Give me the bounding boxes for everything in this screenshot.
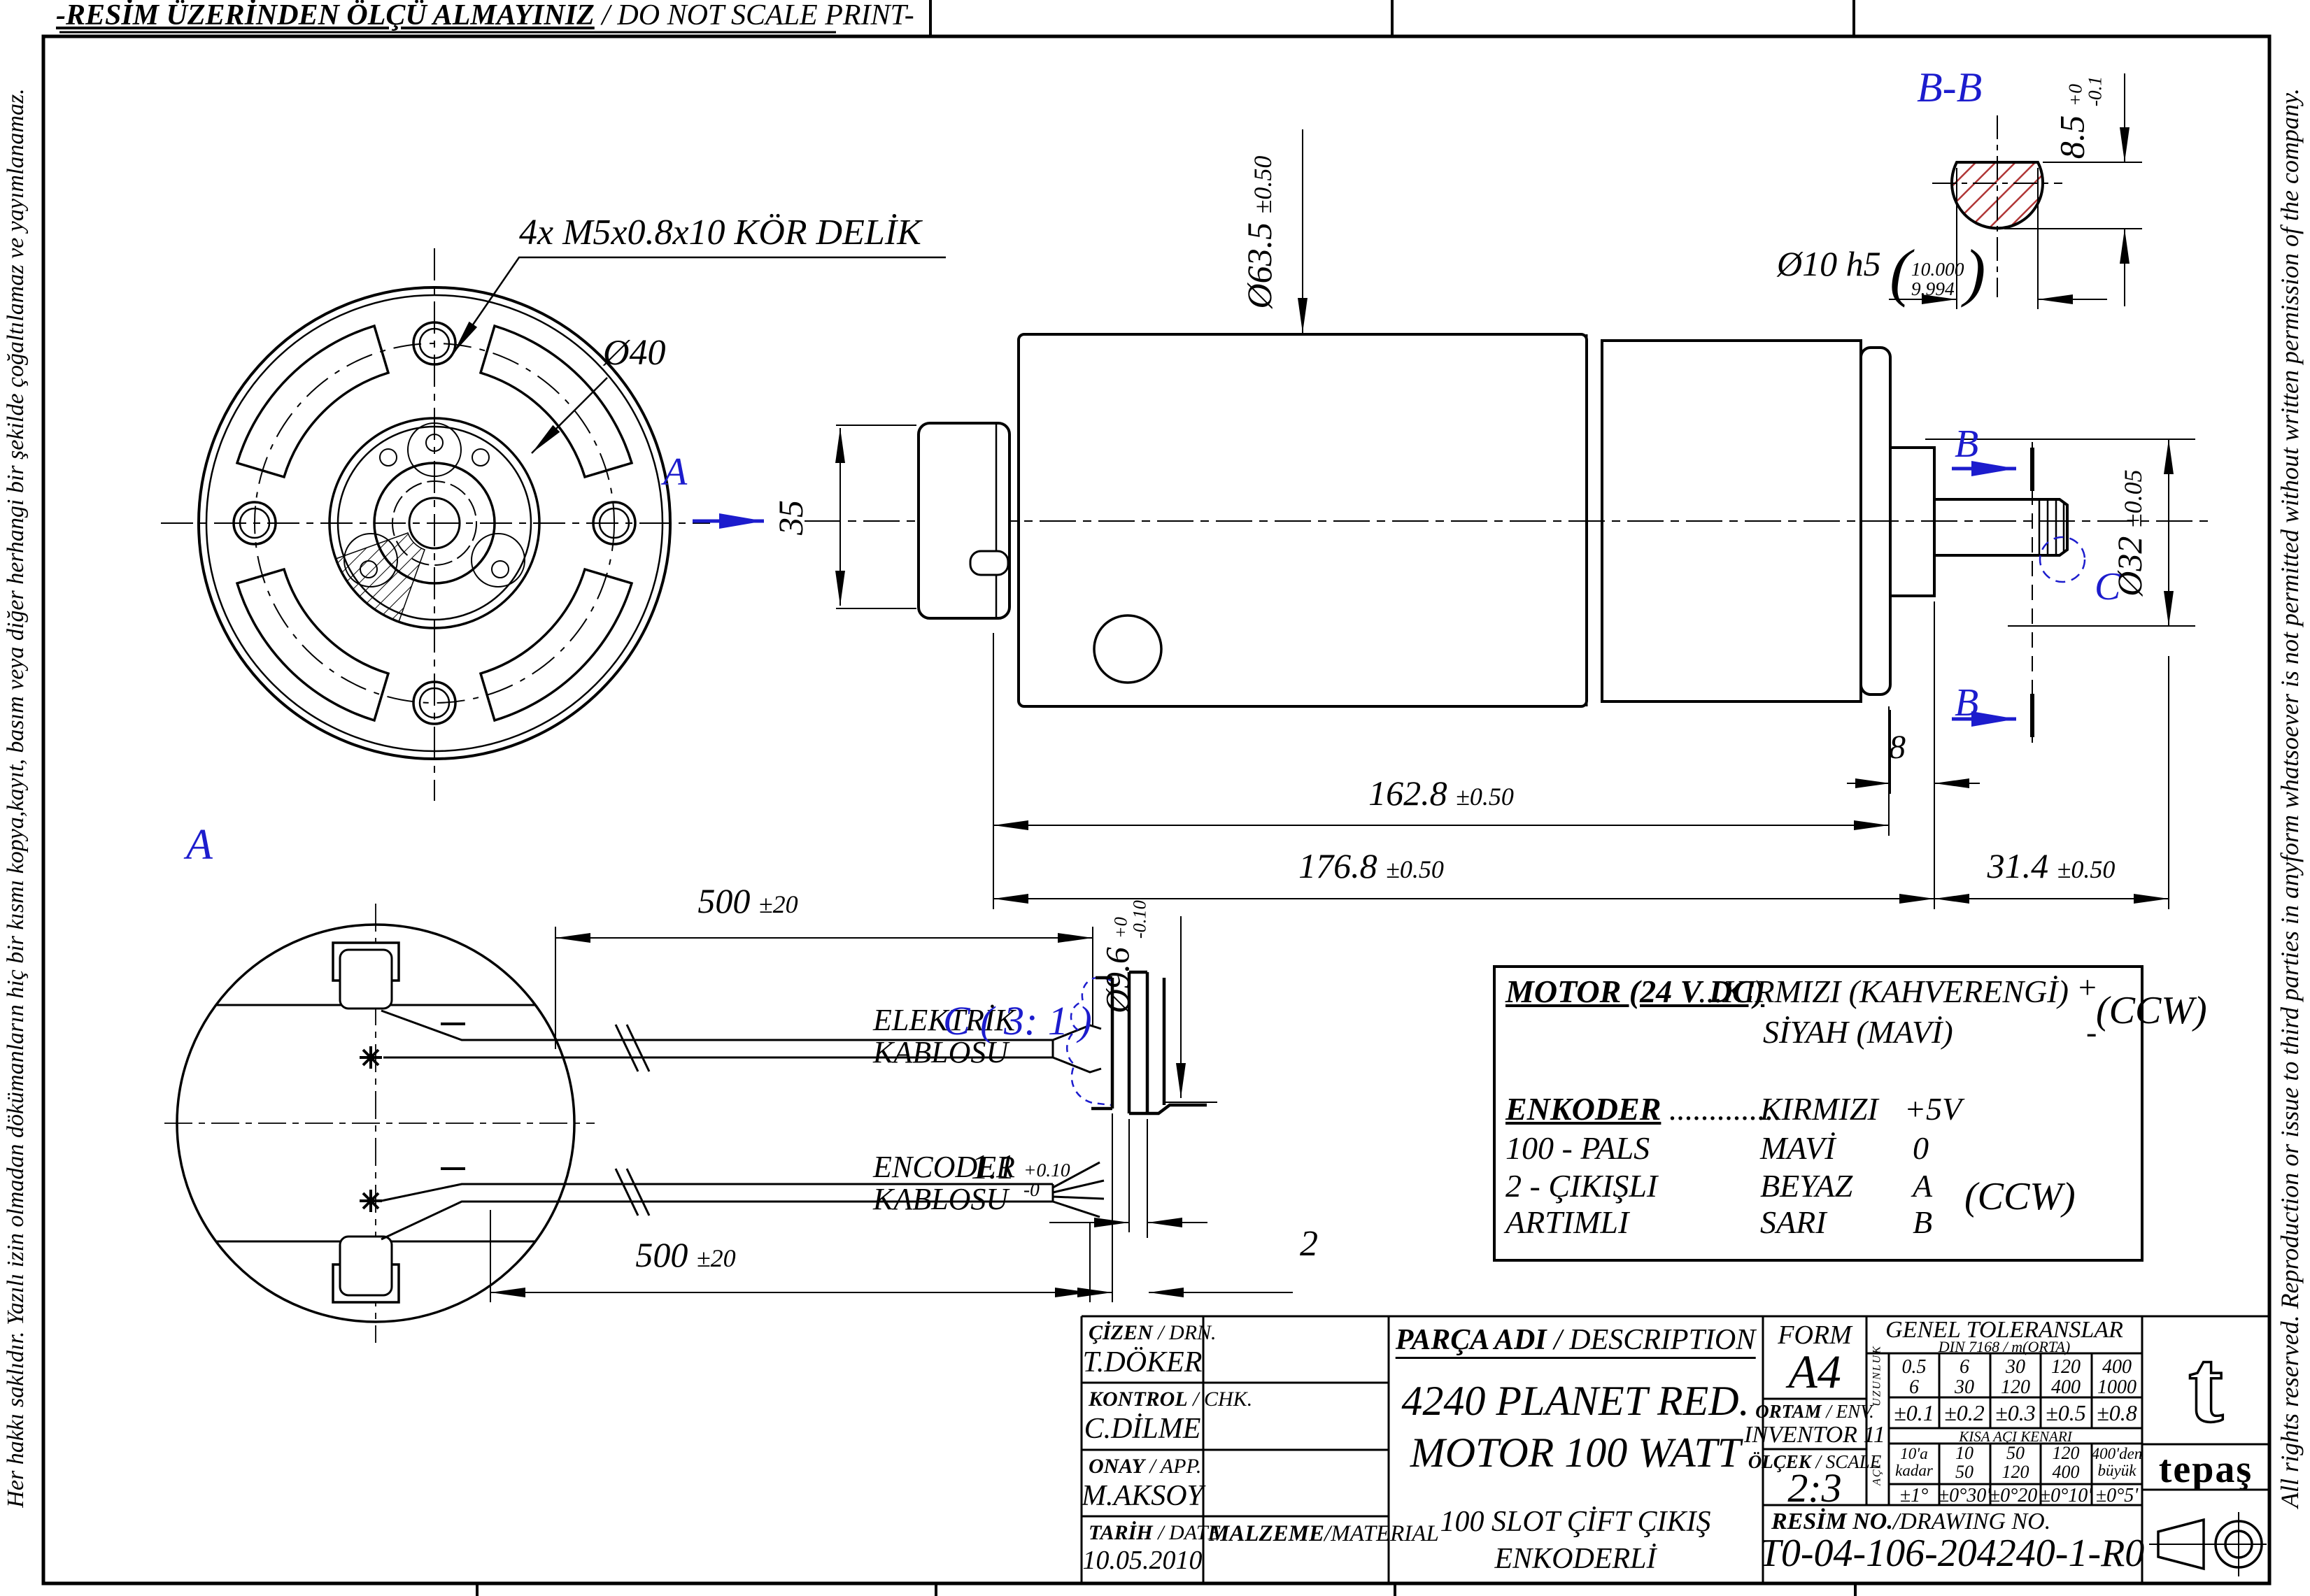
titleblock-drn-label: ÇİZEN / DRN. (1089, 1322, 1217, 1344)
dim-rear-diameter: Ø32 ±0.05 (2111, 469, 2148, 596)
conn-row-label: ARTIMLI (1505, 1206, 1629, 1239)
copyright-note-right: All rights reserved. Reproduction or iss… (2275, 0, 2307, 1596)
conn-row-signal: B (1913, 1206, 1932, 1239)
titleblock-material-label: MALZEME/MATERIAL (1209, 1522, 1439, 1546)
tolerance-subtitle: DIN 7168 / m(ORTA) (1939, 1339, 2070, 1355)
len-tol-cell: ±0.8 (2097, 1402, 2137, 1425)
dim-gearbox-length: 162.8 ±0.50 (1368, 775, 1514, 812)
titleblock-drn-value: T.DÖKER (1083, 1347, 1203, 1378)
section-a-title: A (186, 822, 213, 868)
dim-shaft-diameter: Ø10 h5 (10.0009.994) (1777, 239, 1985, 307)
scale-value: 2:3 (1787, 1467, 1841, 1510)
dim-total-length: 176.8 ±0.50 (1298, 848, 1444, 885)
len-range-cell: 120400 (2051, 1357, 2081, 1398)
dim-groove-diameter: Ø9.6 +0-0.10 (1101, 900, 1149, 1013)
part-name-line1: 4240 PLANET RED. (1401, 1379, 1749, 1423)
section-arrow-b-top-label: B (1955, 424, 1978, 465)
logo-t-icon: t (2188, 1328, 2223, 1444)
drawing-number-label: RESİM NO./DRAWING NO. (1771, 1509, 2050, 1534)
conn-row-label: 2 - ÇIKIŞLI (1505, 1169, 1657, 1203)
titleblock-description-label: PARÇA ADI / DESCRIPTION (1396, 1325, 1756, 1359)
len-range-cell: 630 (1955, 1357, 1974, 1398)
tolerance-angle-label: AÇI (1872, 1463, 1884, 1485)
part-name-subtitle: 100 SLOT ÇİFT ÇIKIŞ ENKODERLİ (1440, 1504, 1710, 1577)
form-value: A4 (1788, 1347, 1841, 1397)
callout-bolt-circle: Ø40 (603, 334, 666, 373)
conn-motor-sign-neg: - (2086, 1016, 2097, 1049)
section-a-view (164, 904, 1104, 1343)
titleblock-date-label: TARİH / DATE (1089, 1522, 1221, 1544)
ang-tol-cell: ±0°20' (1990, 1485, 2042, 1506)
conn-row-signal: 0 (1913, 1132, 1929, 1165)
conn-motor-wire-neg: SİYAH (MAVİ) (1763, 1016, 1953, 1049)
ang-tol-cell: ±0°10' (2040, 1485, 2092, 1506)
drawing-number-value: T0-04-106-204240-1-R0 (1759, 1533, 2145, 1574)
len-tol-cell: ±0.5 (2046, 1402, 2086, 1425)
drawing-sheet: t -RESİM ÜZERİNDEN ÖLÇÜ ALMAYINIZ / DO N… (0, 0, 2310, 1596)
conn-row-wire: SARI (1760, 1206, 1827, 1239)
angle-header: KISA AÇI KENARI (1959, 1429, 2071, 1444)
conn-encoder-direction: (CCW) (1964, 1176, 2076, 1218)
titleblock-date-value: 10.05.2010 (1083, 1547, 1203, 1575)
section-arrow-a-label: A (663, 452, 687, 493)
titleblock-app-value: M.AKSOY (1082, 1481, 1203, 1511)
ang-range-cell: 10'akadar (1895, 1446, 1933, 1479)
ang-range-cell: 400'denbüyük (2092, 1446, 2143, 1479)
dim-boss-length: 8 (1889, 730, 1906, 765)
ang-tol-cell: ±1° (1900, 1485, 1929, 1506)
conn-encoder-row-header: ENKODER .............. (1505, 1092, 1782, 1126)
ang-tol-cell: ±0°30' (1939, 1485, 1991, 1506)
conn-motor-wire-pos: ...KIRMIZI (KAHVERENGİ) (1699, 975, 2069, 1009)
conn-row-wire: MAVİ (1760, 1132, 1836, 1165)
projection-symbol-icon (2149, 1512, 2267, 1576)
len-tol-cell: ±0.2 (1944, 1402, 1985, 1425)
conn-encoder-signal: +5V (1904, 1092, 1962, 1126)
env-value: INVENTOR 11 (1744, 1423, 1885, 1448)
titleblock-chk-value: C.DİLME (1084, 1413, 1201, 1444)
ang-range-cell: 120400 (2053, 1444, 2080, 1482)
ang-tol-cell: ±0°5' (2096, 1485, 2139, 1506)
dim-cable-length-bottom: 500 ±20 (635, 1237, 735, 1274)
conn-motor-sign-pos: + (2076, 971, 2098, 1004)
header-warning-en: / DO NOT SCALE PRINT- (595, 0, 914, 31)
ang-range-cell: 1050 (1955, 1444, 1974, 1482)
dim-cable-length-top: 500 ±20 (697, 883, 798, 920)
env-label: ORTAM / ENV. (1755, 1402, 1874, 1421)
len-range-cell: 30120 (2001, 1357, 2030, 1398)
dim-shaft-length: 31.4 ±0.50 (1987, 848, 2116, 885)
dim-body-diameter: Ø63.5 ±0.50 (1241, 156, 1278, 309)
header-warning-tr: -RESİM ÜZERİNDEN ÖLÇÜ ALMAYINIZ (56, 0, 595, 31)
conn-row-signal: A (1913, 1169, 1932, 1203)
titleblock-app-label: ONAY / APP. (1089, 1455, 1201, 1478)
dim-groove-width: 1.1 +0.10-0 (971, 1148, 1070, 1199)
conn-row-label: 100 - PALS (1505, 1132, 1650, 1165)
len-range-cell: 0.56 (1902, 1357, 1927, 1398)
conn-motor-direction: (CCW) (2096, 990, 2207, 1032)
header-warning: -RESİM ÜZERİNDEN ÖLÇÜ ALMAYINIZ / DO NOT… (56, 0, 846, 31)
dim-shaft-flat: 8.5 +0-0.1 (2054, 76, 2105, 159)
ang-range-cell: 50120 (2002, 1444, 2029, 1482)
conn-row-wire: BEYAZ (1760, 1169, 1852, 1203)
detail-c-view (1049, 916, 1293, 1302)
len-tol-cell: ±0.1 (1894, 1402, 1934, 1425)
section-bb-title: B-B (1917, 66, 1982, 110)
len-tol-cell: ±0.3 (1995, 1402, 2036, 1425)
detail-c-title: C ( 3: 1 ) (943, 1000, 1092, 1043)
titleblock-chk-label: KONTROL / CHK. (1089, 1388, 1252, 1411)
conn-encoder-wire: KIRMIZI (1760, 1092, 1878, 1126)
callout-tapped-holes: 4x M5x0.8x10 KÖR DELİK (519, 214, 921, 252)
section-arrow-b-bottom-label: B (1955, 683, 1978, 724)
dim-groove-depth: 2 (1300, 1225, 1318, 1264)
part-name-line2: MOTOR 100 WATT (1410, 1431, 1741, 1475)
tolerance-length-label: UZUNLUK (1872, 1345, 1884, 1406)
len-range-cell: 4001000 (2097, 1357, 2137, 1398)
company-logo-wordmark: tepaş (2159, 1449, 2253, 1490)
front-view (161, 248, 946, 801)
dim-pilot-height: 35 (772, 500, 809, 535)
copyright-note-left: Her hakkı saklıdır. Yazılı izin olmadan … (3, 0, 35, 1596)
